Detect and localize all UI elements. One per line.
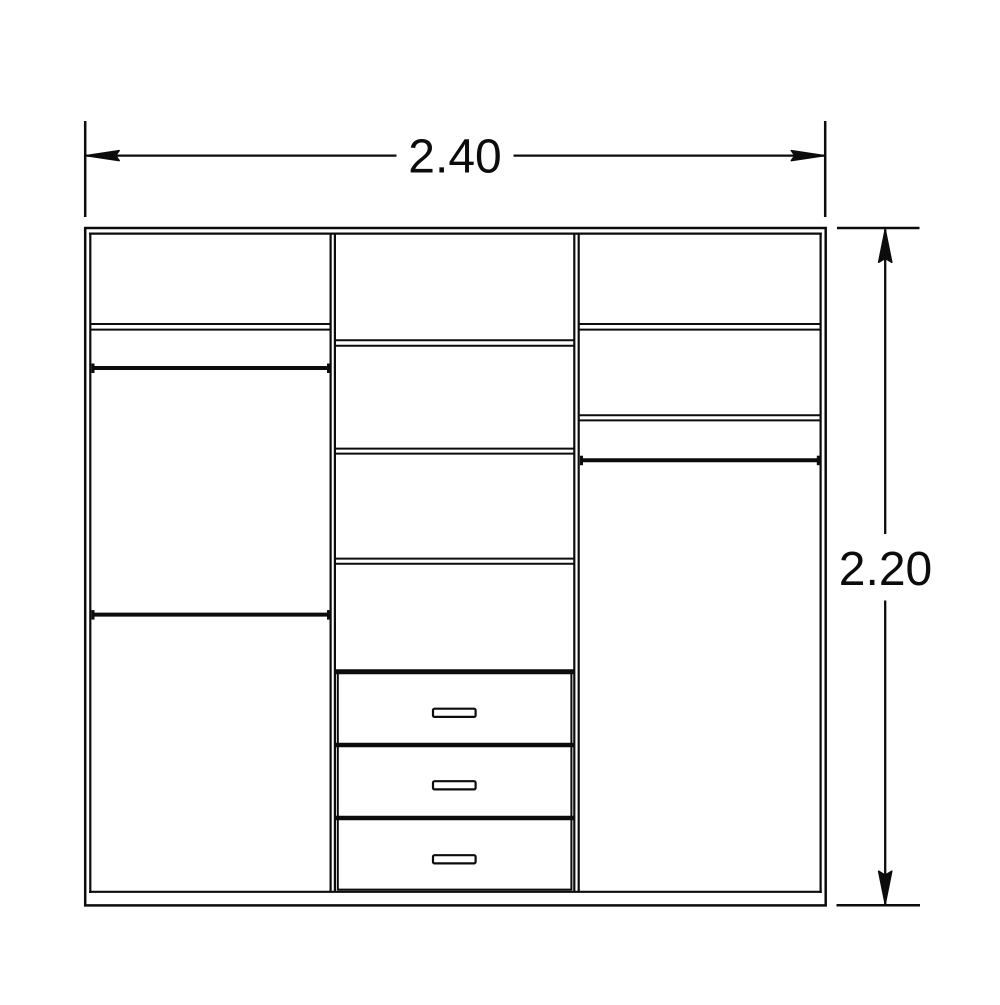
svg-text:2.40: 2.40 bbox=[408, 131, 501, 184]
svg-text:2.20: 2.20 bbox=[839, 543, 932, 596]
